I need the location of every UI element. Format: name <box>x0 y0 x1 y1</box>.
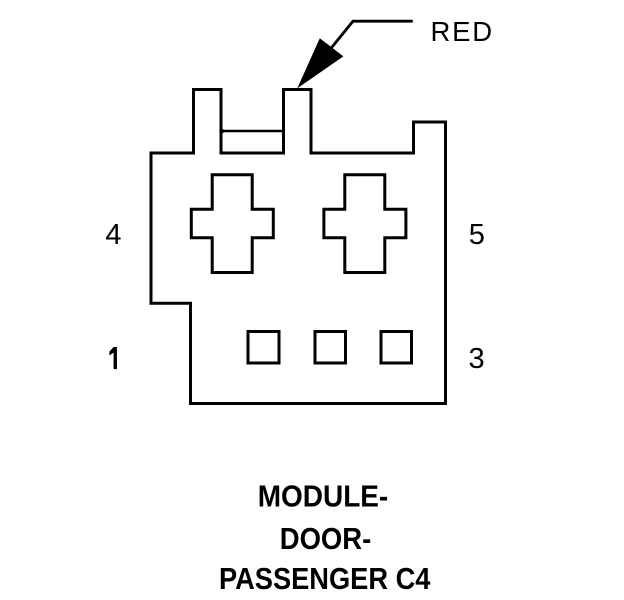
svg-text:RED: RED <box>431 16 494 47</box>
svg-text:PASSENGER C4: PASSENGER C4 <box>219 561 431 596</box>
svg-text:MODULE-: MODULE- <box>258 479 389 514</box>
svg-text:DOOR-: DOOR- <box>280 521 372 556</box>
svg-text:5: 5 <box>469 219 485 251</box>
svg-text:4: 4 <box>105 219 121 251</box>
svg-text:3: 3 <box>469 343 485 375</box>
